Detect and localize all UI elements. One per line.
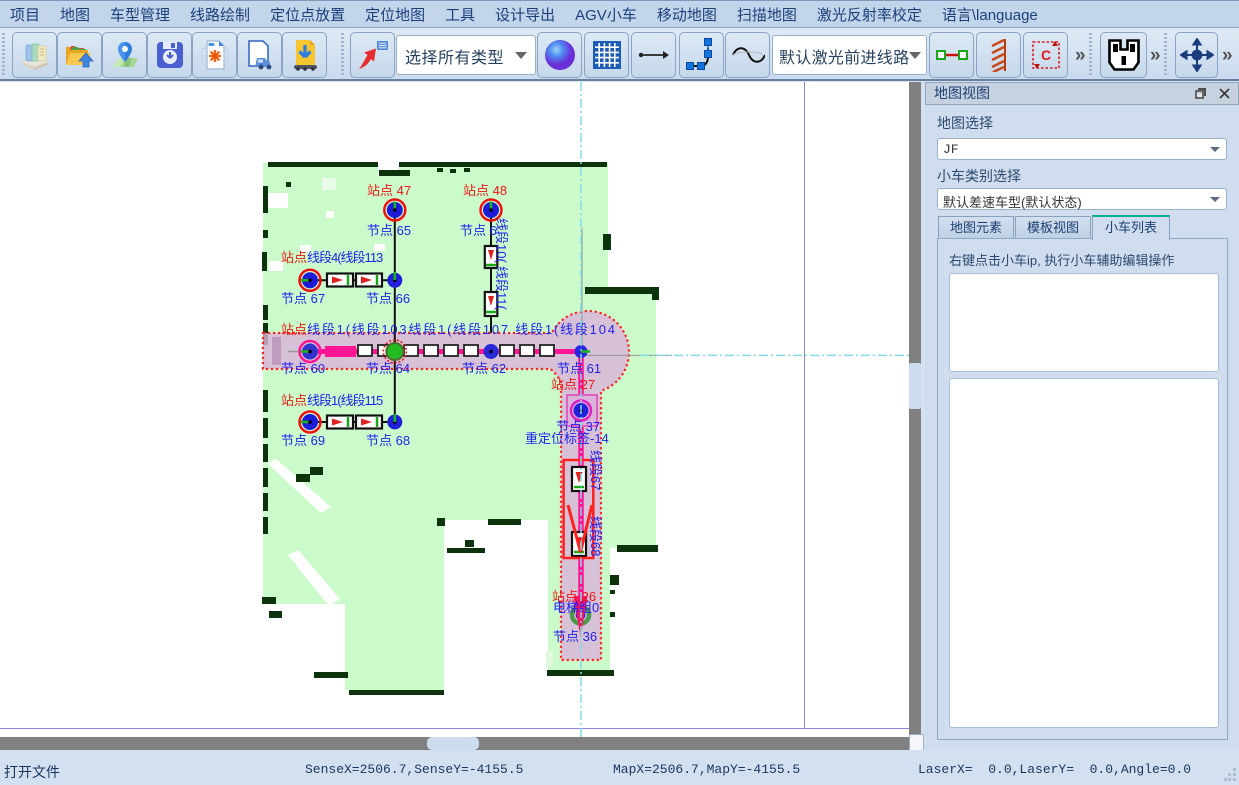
svg-text:站点 47: 站点 47	[367, 183, 411, 198]
svg-text:站点: 站点	[281, 250, 307, 265]
svg-text:节点 60: 节点 60	[281, 361, 325, 376]
svg-text:线段67: 线段67	[588, 450, 603, 490]
svg-text:站点: 站点	[281, 393, 307, 408]
svg-text:节点 36: 节点 36	[553, 629, 597, 644]
svg-text:C: C	[1040, 47, 1050, 63]
svg-text:线段4(线段113: 线段4(线段113	[307, 250, 383, 265]
svg-text:线段68: 线段68	[588, 516, 603, 556]
svg-text:电梯组0: 电梯组0	[553, 600, 599, 615]
svg-text:节点 68: 节点 68	[366, 433, 410, 448]
svg-text:节点 64: 节点 64	[366, 361, 410, 376]
svg-text:站点: 站点	[281, 322, 307, 337]
svg-text:节点 65: 节点 65	[367, 223, 411, 238]
svg-text:节点 61: 节点 61	[557, 361, 601, 376]
svg-text:节点 69: 节点 69	[281, 433, 325, 448]
svg-text:站点 48: 站点 48	[463, 183, 507, 198]
svg-text:线段1(线段115: 线段1(线段115	[307, 393, 383, 408]
svg-text:节点 62: 节点 62	[462, 361, 506, 376]
svg-text:线段10(: 线段10(	[494, 218, 509, 263]
svg-text:节点 67: 节点 67	[281, 291, 325, 306]
svg-text:节点 66: 节点 66	[366, 291, 410, 306]
svg-text:线段1(线段103线段1(线段107 线段1(线段104: 线段1(线段103线段1(线段107 线段1(线段104	[307, 322, 617, 337]
svg-text:重定位标签-14: 重定位标签-14	[525, 431, 609, 446]
svg-text:站点 27: 站点 27	[551, 377, 595, 392]
svg-text:节点 6: 节点 6	[460, 223, 497, 238]
svg-text:线段11(: 线段11(	[494, 266, 509, 310]
